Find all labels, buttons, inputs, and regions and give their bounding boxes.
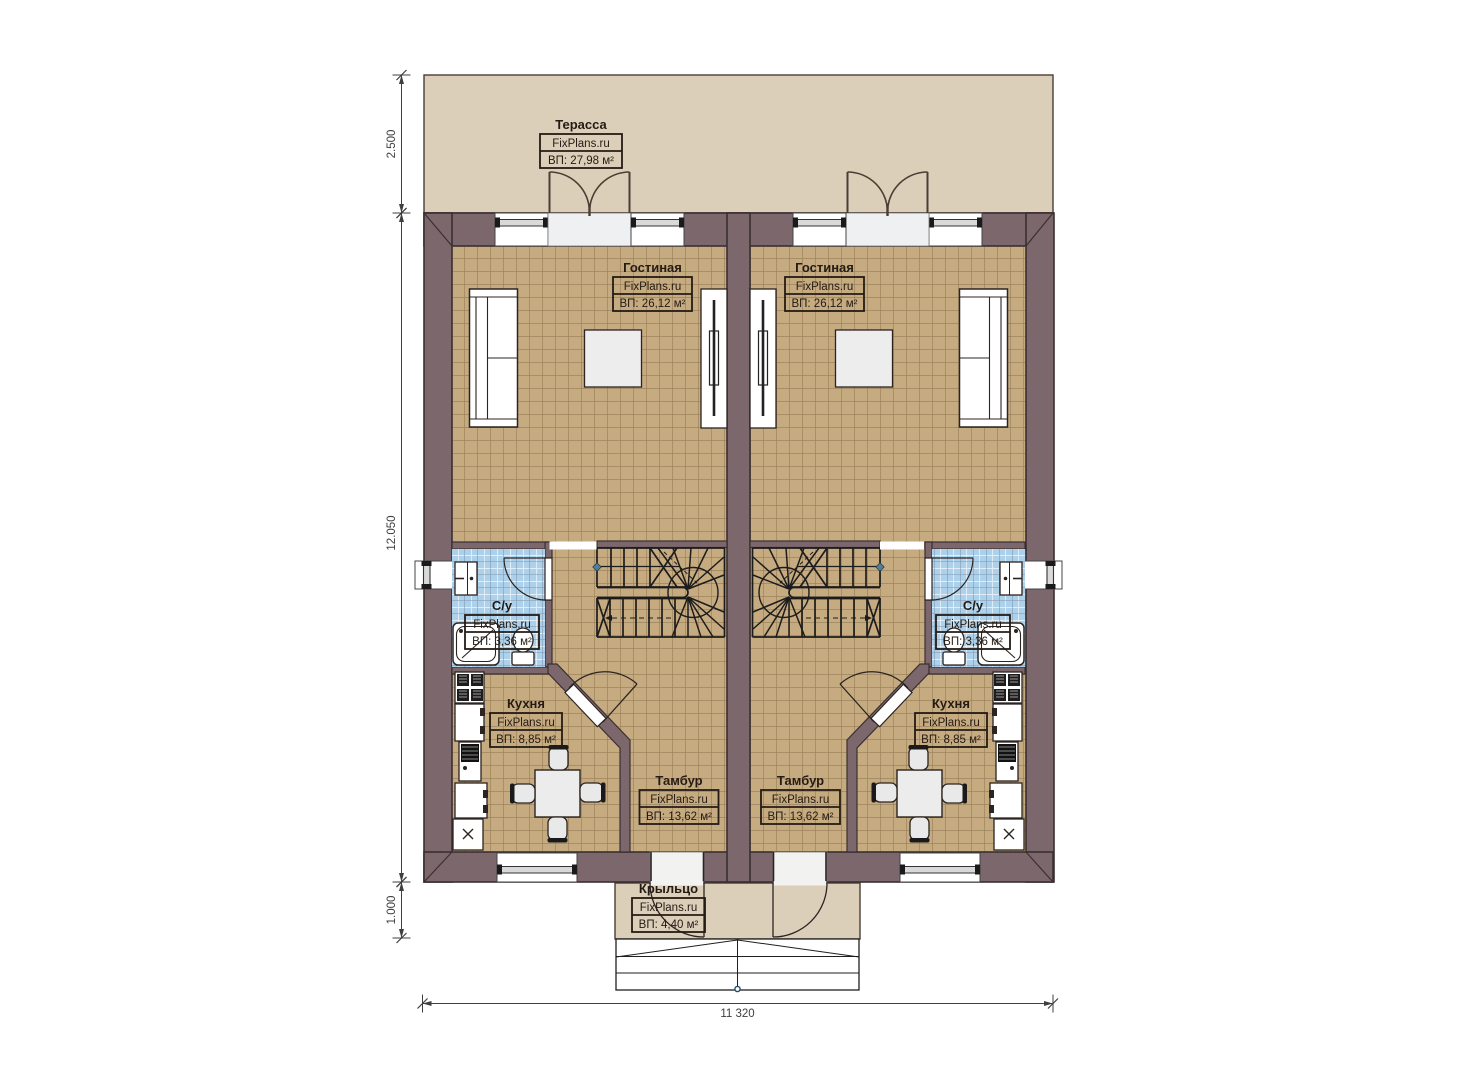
svg-text:С/у: С/у — [492, 598, 513, 613]
svg-text:FixPlans.ru: FixPlans.ru — [497, 717, 555, 729]
svg-text:FixPlans.ru: FixPlans.ru — [624, 281, 682, 293]
svg-text:Кухня: Кухня — [932, 696, 970, 711]
svg-text:Тамбур: Тамбур — [655, 773, 702, 788]
svg-text:FixPlans.ru: FixPlans.ru — [922, 717, 980, 729]
svg-text:FixPlans.ru: FixPlans.ru — [796, 281, 854, 293]
svg-text:FixPlans.ru: FixPlans.ru — [772, 794, 830, 806]
svg-text:FixPlans.ru: FixPlans.ru — [650, 794, 708, 806]
svg-text:ВП: 8,85 м²: ВП: 8,85 м² — [921, 734, 981, 746]
svg-text:ВП: 3,36 м²: ВП: 3,36 м² — [472, 636, 532, 648]
svg-text:Кухня: Кухня — [507, 696, 545, 711]
svg-text:Крыльцо: Крыльцо — [639, 881, 698, 896]
svg-text:FixPlans.ru: FixPlans.ru — [473, 619, 531, 631]
svg-text:FixPlans.ru: FixPlans.ru — [640, 902, 698, 914]
svg-text:ВП: 4,40 м²: ВП: 4,40 м² — [639, 919, 699, 931]
svg-text:ВП: 13,62 м²: ВП: 13,62 м² — [767, 811, 833, 823]
svg-text:12.050: 12.050 — [386, 515, 398, 550]
svg-text:1.000: 1.000 — [386, 896, 398, 925]
svg-text:ВП: 3,36 м²: ВП: 3,36 м² — [943, 636, 1003, 648]
svg-text:ВП: 26,12 м²: ВП: 26,12 м² — [791, 298, 857, 310]
svg-text:FixPlans.ru: FixPlans.ru — [552, 138, 610, 150]
svg-text:2.500: 2.500 — [386, 130, 398, 159]
svg-text:Терасса: Терасса — [555, 117, 607, 132]
svg-text:ВП: 8,85 м²: ВП: 8,85 м² — [496, 734, 556, 746]
svg-text:Тамбур: Тамбур — [777, 773, 824, 788]
svg-text:ВП: 26,12 м²: ВП: 26,12 м² — [619, 298, 685, 310]
svg-text:ВП: 27,98 м²: ВП: 27,98 м² — [548, 155, 614, 167]
svg-text:11 320: 11 320 — [720, 1008, 754, 1020]
svg-text:FixPlans.ru: FixPlans.ru — [944, 619, 1002, 631]
svg-text:ВП: 13,62 м²: ВП: 13,62 м² — [646, 811, 712, 823]
svg-text:Гостиная: Гостиная — [623, 260, 682, 275]
svg-text:Гостиная: Гостиная — [795, 260, 854, 275]
svg-text:С/у: С/у — [963, 598, 984, 613]
